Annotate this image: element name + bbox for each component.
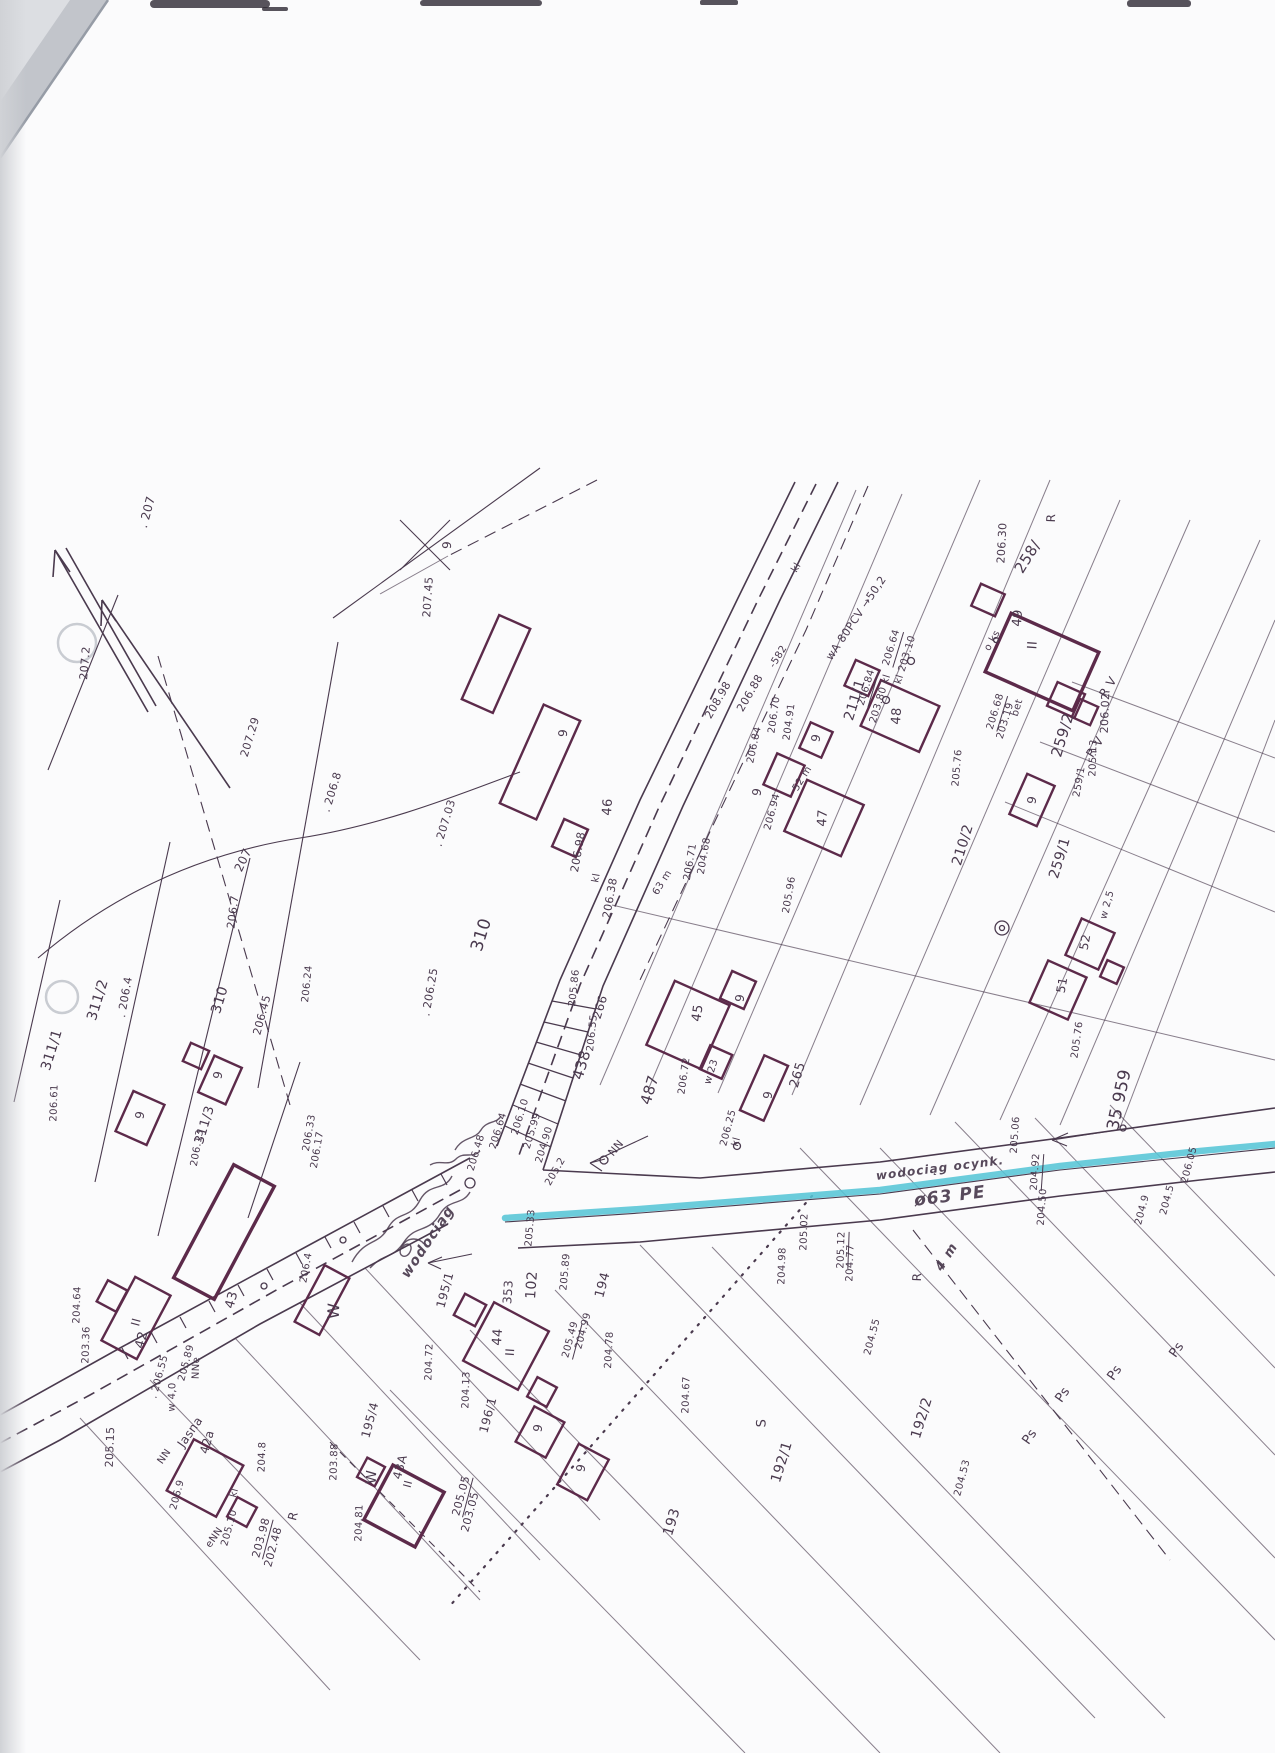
- map-label: 311/1: [39, 1028, 65, 1073]
- map-label: Ps: [1053, 1385, 1072, 1405]
- map-label: 206.88: [735, 673, 765, 714]
- map-label: 205.33: [524, 1209, 537, 1247]
- map-label: 258/: [1012, 538, 1043, 576]
- map-label: S: [755, 1418, 768, 1427]
- map-label: 49: [1011, 609, 1025, 627]
- map-label: 9: [441, 541, 454, 550]
- map-label: 204.72: [424, 1343, 435, 1381]
- map-label: 204.53: [953, 1459, 972, 1498]
- map-label: 204.50: [1037, 1188, 1050, 1226]
- map-label: II: [129, 1317, 143, 1328]
- map-label: R: [911, 1272, 923, 1281]
- map-label: 204.68: [697, 837, 713, 876]
- map-label: W: [365, 1470, 379, 1485]
- map-label: 102: [524, 1271, 540, 1300]
- map-label: II: [1026, 640, 1040, 649]
- map-label: Ps: [1105, 1363, 1124, 1383]
- map-label: . 207: [137, 495, 157, 530]
- map-label: 205.96: [782, 876, 798, 915]
- map-label: 35 959: [1105, 1068, 1134, 1132]
- map-label: 4 m: [933, 1241, 960, 1274]
- map-label: 206.61: [49, 1084, 60, 1122]
- map-label: II: [402, 1479, 415, 1489]
- map-label: 487: [638, 1074, 661, 1107]
- map-label: 206.64: [489, 1112, 509, 1151]
- map-label: 9: [133, 1110, 146, 1120]
- map-label: 208.98: [703, 680, 733, 721]
- map-label: wodociąg: [399, 1203, 457, 1280]
- map-label: 192/1: [769, 1440, 795, 1485]
- map-label: R: [286, 1510, 300, 1522]
- map-label: 204.81: [354, 1504, 365, 1542]
- map-label: NN: [156, 1448, 173, 1467]
- map-label: 9: [733, 993, 746, 1003]
- map-label: 259/2: [1049, 711, 1077, 759]
- map-label: 204.92: [1030, 1153, 1045, 1191]
- map-label: wodociąg ocynk.: [875, 1154, 1005, 1182]
- map-label: 206.98: [569, 831, 587, 873]
- map-label: -582: [768, 644, 789, 670]
- map-label: 205.10: [220, 1509, 239, 1548]
- map-label: 47: [816, 809, 830, 827]
- map-label: 205.86: [568, 969, 582, 1007]
- map-label: o ks: [983, 629, 1003, 653]
- map-label: 207.45: [421, 576, 435, 618]
- map-label: W: [326, 1303, 343, 1320]
- map-label: 51: [1055, 976, 1070, 994]
- map-label: 206.7: [225, 895, 240, 930]
- map-label: kl: [229, 1487, 241, 1499]
- map-label: 259/1: [1072, 766, 1087, 798]
- map-label: 438: [570, 1049, 593, 1082]
- map-label: 204.77: [845, 1244, 856, 1282]
- map-label: 206.48: [467, 1134, 487, 1173]
- map-label: 45: [690, 1004, 705, 1023]
- map-label: 205.89: [559, 1253, 572, 1291]
- map-label: 265: [788, 1061, 808, 1090]
- map-label: 205.02: [799, 1213, 810, 1251]
- map-label: R: [1045, 513, 1057, 522]
- map-label: 259/1: [1047, 836, 1073, 881]
- map-label: 310: [469, 916, 495, 953]
- map-label: 207: [232, 847, 253, 874]
- map-label: 206.13: [190, 1129, 206, 1168]
- map-label: 43: [223, 1290, 240, 1310]
- map-label: 204.67: [681, 1376, 692, 1414]
- map-label: NNe: [192, 1357, 203, 1380]
- map-label: 310: [209, 985, 231, 1016]
- map-label: 207.29: [239, 716, 261, 758]
- map-label: ø63 PE: [913, 1184, 986, 1210]
- map-label: 206.4: [299, 1252, 314, 1284]
- map-label: 205.2: [544, 1156, 568, 1188]
- map-label: 52: [1078, 933, 1093, 951]
- map-label: 192/2: [909, 1396, 935, 1441]
- map-label: 204.91: [782, 703, 797, 741]
- map-label: 63 m: [652, 869, 675, 897]
- map-labels: . 207207.2207.29207. 206.8206.7311/2311/…: [0, 0, 1275, 1753]
- map-label: 195/4: [359, 1401, 380, 1439]
- map-label: II: [504, 1348, 517, 1357]
- map-label: 9: [750, 787, 763, 797]
- scanned-map-sheet: . 207207.2207.29207. 206.8206.7311/2311/…: [0, 0, 1275, 1753]
- map-label: . 206.4: [116, 976, 134, 1019]
- map-label: 204.55: [863, 1318, 882, 1357]
- map-label: 193: [661, 1507, 683, 1538]
- map-label: w 4,0: [167, 1382, 178, 1412]
- map-label: kl: [790, 561, 803, 574]
- map-label: 203.88: [329, 1443, 340, 1481]
- map-label: 204.9: [1134, 1194, 1152, 1226]
- map-label: 210/2: [950, 823, 976, 868]
- map-label: 204.13: [461, 1371, 472, 1409]
- map-label: 206.38: [601, 877, 619, 919]
- map-label: 42: [133, 1330, 150, 1350]
- map-label: 204.99: [574, 1312, 593, 1351]
- map-label: 195/1: [434, 1271, 455, 1309]
- map-label: wA 80PCV →50,2: [824, 574, 888, 662]
- map-label: NN: [606, 1138, 626, 1158]
- map-label: 353: [501, 1280, 515, 1305]
- map-label: 204.78: [604, 1331, 616, 1369]
- map-label: . 207.03: [433, 798, 458, 848]
- map-label: w 23: [703, 1058, 720, 1085]
- map-label: 206.45: [251, 994, 272, 1036]
- map-label: 206.70: [767, 696, 782, 734]
- map-label: bet: [1011, 698, 1026, 718]
- map-label: 9: [1025, 795, 1038, 805]
- map-label: 204.8: [257, 1442, 268, 1473]
- map-label: kl: [731, 1136, 743, 1148]
- map-label: Ps: [1020, 1427, 1039, 1447]
- map-label: 206.30: [995, 522, 1008, 563]
- map-label: . 206.8: [321, 771, 344, 814]
- map-label: kl: [591, 873, 602, 884]
- map-label: 206.55: [586, 1014, 600, 1052]
- map-label: 204.98: [777, 1247, 788, 1285]
- map-label: 206.84: [746, 726, 764, 765]
- map-label: Ps: [1167, 1340, 1186, 1360]
- map-label: 204.64: [72, 1286, 83, 1324]
- map-label: 9: [574, 1463, 587, 1473]
- map-label: 205.13: [1088, 739, 1099, 777]
- map-label: 196/1: [477, 1396, 498, 1434]
- map-label: 205.76: [1070, 1021, 1085, 1059]
- map-label: 43A: [391, 1454, 409, 1481]
- map-label: 42a: [198, 1429, 216, 1455]
- map-label: 206.02: [1099, 692, 1111, 733]
- map-label: 205.76: [951, 749, 964, 787]
- map-label: 46: [601, 798, 615, 816]
- map-label: w 2,5: [1099, 890, 1116, 921]
- map-label: 48: [890, 707, 904, 725]
- map-label: 203.36: [81, 1326, 92, 1364]
- map-label: 206.24: [301, 965, 315, 1003]
- map-label: 206.94: [763, 793, 782, 832]
- map-label: 9: [557, 729, 570, 738]
- map-label: 9: [809, 733, 822, 743]
- map-label: 207.2: [78, 646, 92, 680]
- map-label: 206.9: [169, 1479, 187, 1511]
- map-label: 205.06: [1010, 1116, 1023, 1154]
- map-label: 9: [761, 1090, 774, 1100]
- map-label: 194: [593, 1271, 612, 1299]
- map-label: 9: [531, 1423, 544, 1433]
- map-label: 206.72: [677, 1057, 692, 1095]
- map-label: 311/2: [85, 978, 111, 1023]
- map-label: 204.5: [1159, 1184, 1177, 1216]
- map-label: 52 m: [792, 765, 815, 793]
- map-label: . 206.25: [420, 967, 439, 1017]
- map-label: 44: [491, 1328, 505, 1346]
- map-label: 9: [211, 1070, 224, 1080]
- map-label: 206.05: [1180, 1146, 1199, 1185]
- map-label: 205.15: [104, 1426, 116, 1467]
